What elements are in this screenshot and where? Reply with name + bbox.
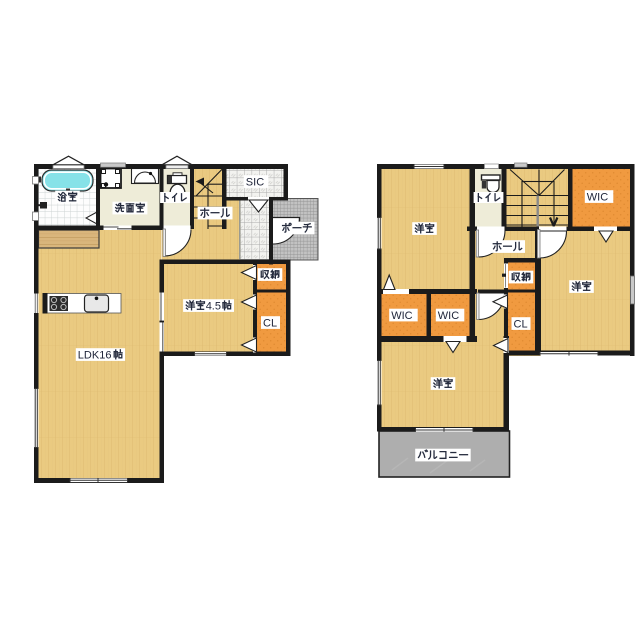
svg-text:WIC: WIC	[391, 310, 412, 322]
svg-text:WIC: WIC	[587, 192, 608, 204]
svg-text:4.5: 4.5	[206, 301, 221, 313]
svg-text:CL: CL	[514, 319, 528, 331]
svg-text:LDK16: LDK16	[78, 350, 112, 362]
svg-text:WIC: WIC	[438, 310, 459, 322]
svg-text:CL: CL	[263, 318, 277, 330]
svg-text:SIC: SIC	[246, 177, 264, 189]
